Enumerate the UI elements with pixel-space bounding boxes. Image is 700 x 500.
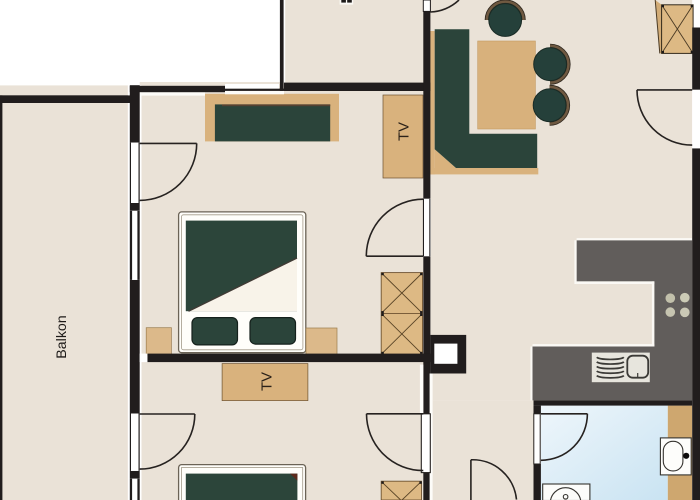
svg-text:TV: TV — [260, 372, 276, 391]
svg-text:TV: TV — [397, 122, 413, 141]
svg-text:Balkon: Balkon — [54, 315, 70, 358]
